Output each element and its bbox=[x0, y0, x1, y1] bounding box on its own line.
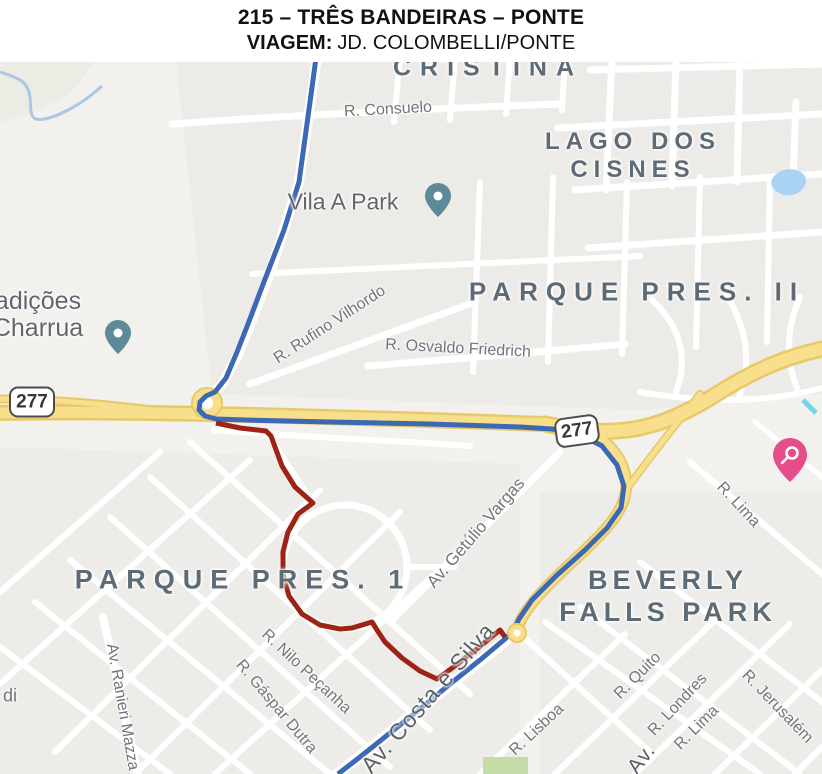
map-pin-icon bbox=[425, 183, 451, 217]
area-label-parque-pres-ii: PARQUE PRES. II bbox=[469, 277, 805, 308]
greenspace-patch bbox=[0, 62, 95, 122]
street-label-partial-di: di bbox=[3, 686, 17, 707]
poi-label-vila-a-park: Vila A Park bbox=[288, 189, 399, 216]
highway-shield-277-mid: 277 bbox=[553, 413, 601, 449]
water-channel-mark bbox=[803, 400, 816, 413]
lago-line2: CISNES bbox=[545, 156, 721, 184]
park-area bbox=[483, 757, 528, 774]
viagem-label: VIAGEM: bbox=[247, 32, 333, 54]
pink-pin-icon bbox=[773, 438, 807, 482]
route-title: 215 – TRÊS BANDEIRAS – PONTE bbox=[0, 6, 822, 30]
beverly-line1: BEVERLY bbox=[559, 564, 777, 596]
lago-line1: LAGO DOS bbox=[545, 128, 721, 156]
highway-shield-277-left: 277 bbox=[9, 387, 55, 418]
charrua-line2: Charrua bbox=[0, 315, 83, 342]
area-label-lago-dos-cisnes: LAGO DOS CISNES bbox=[545, 128, 721, 184]
area-label-parque-pres-1: PARQUE PRES. 1 bbox=[75, 565, 412, 596]
viagem-value: JD. COLOMBELLI/PONTE bbox=[337, 32, 575, 54]
beverly-line2: FALLS PARK bbox=[559, 596, 777, 628]
trip-subtitle: VIAGEM:JD. COLOMBELLI/PONTE bbox=[0, 32, 822, 55]
charrua-line1: adições bbox=[0, 288, 83, 315]
poi-label-charrua: adições Charrua bbox=[0, 288, 83, 342]
map-title-header: 215 – TRÊS BANDEIRAS – PONTE VIAGEM:JD. … bbox=[0, 0, 822, 62]
map-pin-icon bbox=[105, 320, 131, 354]
area-label-cristina: CRISTINA bbox=[393, 62, 583, 83]
area-label-beverly-falls-park: BEVERLY FALLS PARK bbox=[559, 564, 777, 628]
map-canvas[interactable]: CRISTINA LAGO DOS CISNES PARQUE PRES. II… bbox=[0, 62, 822, 774]
roundabout-mini bbox=[508, 624, 526, 642]
route-map-page: { "header": { "title_line": "215 – TRÊS … bbox=[0, 0, 822, 774]
